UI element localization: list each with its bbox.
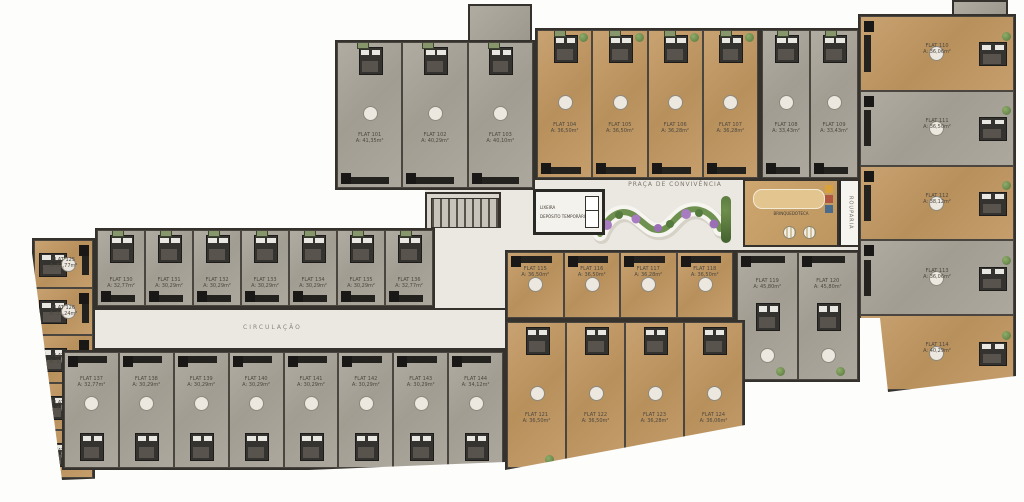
ac-planter-box bbox=[160, 230, 172, 237]
blanket bbox=[778, 49, 794, 60]
unit-label: FLAT 115A: 36,50m² bbox=[508, 266, 563, 278]
unit-label: FLAT 140A: 30,29m² bbox=[230, 376, 283, 388]
bathroom bbox=[68, 356, 78, 367]
unit-label: FLAT 122A: 36,50m² bbox=[567, 412, 624, 424]
bed bbox=[644, 327, 668, 355]
bathroom bbox=[568, 256, 578, 267]
pillow bbox=[982, 45, 992, 50]
ac-planter-box bbox=[777, 30, 789, 37]
unit-label: FLAT 104A: 36,50m² bbox=[538, 122, 591, 134]
flat-number: FLAT 124 bbox=[685, 412, 742, 418]
unit-flat: FLAT 138A: 30,29m² bbox=[119, 352, 174, 468]
flat-area: A: 40,10m² bbox=[469, 138, 532, 144]
pillow bbox=[42, 398, 52, 403]
bed bbox=[817, 303, 841, 331]
unit-flat: FLAT 137A: 32,77m² bbox=[64, 352, 119, 468]
unit-label: FLAT 107A: 36,28m² bbox=[704, 122, 757, 134]
unit-flat: FLAT 102A: 40,29m² bbox=[402, 42, 467, 188]
blanket bbox=[468, 447, 484, 458]
pillow bbox=[666, 38, 674, 44]
flat-number: FLAT 107 bbox=[704, 122, 757, 128]
unit-flat: FLAT 120A: 45,80m² bbox=[798, 252, 859, 380]
kitchenette bbox=[203, 295, 231, 302]
pillow bbox=[733, 38, 741, 44]
flat-number: FLAT 144 bbox=[449, 376, 502, 382]
kitchenette bbox=[864, 185, 871, 221]
bathroom bbox=[624, 256, 634, 267]
pillow bbox=[528, 330, 536, 336]
blanket bbox=[529, 341, 545, 352]
unit-flat: FLAT 109A: 33,43m² bbox=[810, 30, 858, 178]
blanket bbox=[723, 49, 739, 60]
round-table bbox=[929, 46, 944, 61]
blanket bbox=[759, 317, 775, 328]
unit-label: FLAT 142A: 30,29m² bbox=[339, 376, 392, 388]
flat-number: FLAT 123 bbox=[626, 412, 683, 418]
round-table bbox=[469, 396, 484, 411]
unit-flat: FLAT 130A: 32,77m² bbox=[97, 230, 145, 306]
flat-area: A: 36,28m² bbox=[626, 418, 683, 424]
flat-number: FLAT 132 bbox=[194, 277, 240, 283]
bathroom bbox=[178, 356, 188, 367]
pillow bbox=[503, 50, 511, 56]
unit-flat: FLAT 122A: 36,50m² bbox=[566, 322, 625, 468]
unit-label: FLAT 102A: 40,29m² bbox=[403, 132, 466, 144]
kitchenette bbox=[519, 256, 552, 263]
pillow bbox=[171, 238, 179, 244]
bathroom bbox=[652, 163, 662, 174]
unit-flat: FLAT 143A: 30,29m² bbox=[393, 352, 448, 468]
plaza-label: PRAÇA DE CONVIVÊNCIA bbox=[595, 181, 755, 188]
unit-flat: FLAT 119A: 45,80m² bbox=[737, 252, 798, 380]
bed bbox=[465, 433, 489, 461]
ac-planter-box bbox=[720, 30, 732, 37]
flats-left-top-row: FLAT 130A: 32,77m²FLAT 131A: 30,29m²FLAT… bbox=[95, 228, 435, 308]
flat-area: A: 30,29m² bbox=[339, 382, 392, 388]
flat-area: A: 30,29m² bbox=[120, 382, 173, 388]
kitchenette bbox=[864, 35, 871, 71]
flats-top-center: FLAT 104A: 36,50m²FLAT 105A: 36,50m²FLAT… bbox=[535, 28, 760, 180]
flat-number: FLAT 131 bbox=[146, 277, 192, 283]
unit-flat: FLAT 108A: 33,43m² bbox=[762, 30, 810, 178]
bed bbox=[979, 192, 1007, 216]
ac-planter-box bbox=[256, 230, 268, 237]
kitchenette bbox=[864, 110, 871, 146]
bed bbox=[135, 433, 159, 461]
bathroom bbox=[406, 173, 416, 184]
flat-area: A: 36,28m² bbox=[704, 128, 757, 134]
ac-planter-box bbox=[208, 230, 220, 237]
pillow bbox=[267, 238, 275, 244]
blanket bbox=[43, 455, 62, 464]
unit-label: FLAT 108A: 33,43m² bbox=[763, 122, 809, 134]
pillow bbox=[995, 120, 1005, 125]
pillow bbox=[567, 38, 575, 44]
bathroom bbox=[233, 356, 243, 367]
unit-flat: FLAT 101A: 41,35m² bbox=[337, 42, 402, 188]
round-table bbox=[668, 95, 683, 110]
bed bbox=[410, 433, 434, 461]
round-table bbox=[249, 396, 264, 411]
blanket bbox=[353, 249, 369, 260]
unit-label: FLAT 137A: 32,77m² bbox=[65, 376, 118, 388]
unit-flat: FLAT 117A: 36,28m² bbox=[620, 252, 677, 318]
kitchenette bbox=[130, 356, 162, 363]
flat-number: FLAT 138 bbox=[120, 376, 173, 382]
round-table bbox=[414, 396, 429, 411]
pillow bbox=[302, 436, 310, 442]
flat-area: A: 33,43m² bbox=[811, 128, 857, 134]
hedge-planter bbox=[721, 196, 731, 243]
blanket bbox=[43, 408, 62, 417]
blanket bbox=[706, 341, 722, 352]
flat-number: FLAT 137 bbox=[65, 376, 118, 382]
flat-number: FLAT 140 bbox=[230, 376, 283, 382]
bathroom bbox=[511, 256, 521, 267]
pillow bbox=[830, 306, 838, 312]
flat-area: A: 30,29m² bbox=[394, 382, 447, 388]
bed bbox=[300, 433, 324, 461]
plant bbox=[722, 455, 731, 464]
pillow bbox=[423, 436, 431, 442]
bed bbox=[664, 35, 688, 63]
flat-number: FLAT 136 bbox=[386, 277, 432, 283]
plant bbox=[1002, 181, 1011, 190]
round-table bbox=[929, 346, 944, 361]
round-table bbox=[648, 386, 663, 401]
flat-number: FLAT 120 bbox=[799, 278, 858, 284]
bathroom bbox=[123, 356, 133, 367]
bathroom bbox=[864, 320, 874, 331]
blanket bbox=[43, 360, 62, 369]
plant bbox=[745, 33, 754, 42]
plant bbox=[663, 455, 672, 464]
unit-flat: FLAT 141A: 30,29m² bbox=[284, 352, 339, 468]
unit-label: FLAT 105A: 36,50m² bbox=[593, 122, 646, 134]
round-table bbox=[929, 271, 944, 286]
staircase bbox=[431, 198, 499, 228]
blanket bbox=[427, 61, 443, 72]
bed bbox=[585, 327, 609, 355]
pillow bbox=[361, 50, 369, 56]
flat-number: FLAT 106 bbox=[649, 122, 702, 128]
unit-flat: FLAT 140A: 30,29m² bbox=[229, 352, 284, 468]
round-table bbox=[530, 386, 545, 401]
pillow bbox=[677, 38, 685, 44]
flat-area: A: 30,29m² bbox=[285, 382, 338, 388]
round-table bbox=[613, 95, 628, 110]
bathroom bbox=[293, 291, 303, 302]
round-table bbox=[363, 106, 378, 121]
bathroom bbox=[681, 256, 691, 267]
pillow bbox=[368, 436, 376, 442]
corridor-label: CIRCULAÇÃO bbox=[243, 324, 302, 331]
pillow bbox=[112, 238, 120, 244]
pillow bbox=[995, 194, 1005, 199]
unit-flat: FLAT 132A: 30,29m² bbox=[193, 230, 241, 306]
kitchenette bbox=[460, 356, 492, 363]
flat-area: A: 30,29m² bbox=[242, 283, 288, 289]
ac-planter-box bbox=[112, 230, 124, 237]
ac-planter-box bbox=[304, 230, 316, 237]
bathroom bbox=[864, 96, 874, 107]
unit-label: FLAT 136A: 32,77m² bbox=[386, 277, 432, 289]
pillow bbox=[825, 38, 833, 44]
bed bbox=[979, 342, 1007, 366]
bed bbox=[254, 235, 278, 263]
unit-label: FLAT 106A: 36,28m² bbox=[649, 122, 702, 134]
ac-planter-box bbox=[554, 30, 566, 37]
round-table bbox=[698, 277, 713, 292]
unit-flat: FLAT 144A: 34,12m² bbox=[448, 352, 503, 468]
bed bbox=[110, 235, 134, 263]
blanket bbox=[305, 249, 321, 260]
kitchenette bbox=[155, 295, 183, 302]
flat-annex bbox=[952, 0, 1008, 16]
blanket bbox=[43, 312, 62, 321]
round-table bbox=[304, 396, 319, 411]
bed bbox=[554, 35, 578, 63]
bed bbox=[398, 235, 422, 263]
unit-label: FLAT 124A: 36,06m² bbox=[685, 412, 742, 424]
unit-flat: FLAT 115A: 36,50m² bbox=[507, 252, 564, 318]
kitchenette bbox=[688, 256, 721, 263]
bed bbox=[206, 235, 230, 263]
round-table bbox=[428, 106, 443, 121]
kitchenette bbox=[295, 356, 327, 363]
flat-area: A: 45,80m² bbox=[738, 284, 797, 290]
pillow bbox=[42, 303, 52, 308]
flats-bottom-center: FLAT 121A: 36,50m²FLAT 122A: 36,50m²FLAT… bbox=[505, 320, 745, 470]
bathroom bbox=[707, 163, 717, 174]
flat-area: A: 30,29m² bbox=[290, 283, 336, 289]
trash-room: LIXEIRA DEPÓSITO TEMPORÁRIO bbox=[533, 189, 605, 235]
pillow bbox=[492, 50, 500, 56]
unit-flat: FLAT 124A: 36,06m² bbox=[684, 322, 743, 468]
pillow bbox=[352, 238, 360, 244]
blanket bbox=[983, 129, 1002, 138]
flat-number: FLAT 104 bbox=[538, 122, 591, 128]
round-table bbox=[929, 121, 944, 136]
pillow bbox=[836, 38, 844, 44]
blanket bbox=[588, 341, 604, 352]
pillow bbox=[995, 45, 1005, 50]
pillow bbox=[247, 436, 255, 442]
unit-flat: FLAT 125A: 32,77m² bbox=[34, 240, 93, 288]
bathroom bbox=[541, 163, 551, 174]
blanket bbox=[983, 279, 1002, 288]
kitchenette bbox=[350, 356, 382, 363]
blanket bbox=[193, 447, 209, 458]
play-rug bbox=[753, 189, 825, 209]
flat-area: A: 32,77m² bbox=[65, 382, 118, 388]
bathroom bbox=[802, 256, 812, 267]
round-table bbox=[359, 396, 374, 411]
pillow bbox=[363, 238, 371, 244]
pillow bbox=[412, 436, 420, 442]
flat-number: FLAT 108 bbox=[763, 122, 809, 128]
bathroom bbox=[741, 256, 751, 267]
pillow bbox=[83, 436, 91, 442]
unit-label: FLAT 144A: 34,12m² bbox=[449, 376, 502, 388]
bed bbox=[355, 433, 379, 461]
blanket bbox=[303, 447, 319, 458]
pouf bbox=[803, 226, 816, 239]
unit-flat: FLAT 114A: 40,29m² bbox=[860, 315, 1014, 390]
unit-flat: FLAT 111A: 36,50m² bbox=[860, 91, 1014, 166]
pillow bbox=[556, 38, 564, 44]
pillow bbox=[42, 350, 52, 355]
pillow bbox=[622, 38, 630, 44]
flat-number: FLAT 121 bbox=[508, 412, 565, 418]
pillow bbox=[313, 436, 321, 442]
unit-flat: FLAT 103A: 40,10m² bbox=[468, 42, 533, 188]
unit-flat: FLAT 133A: 30,29m² bbox=[241, 230, 289, 306]
unit-label: FLAT 139A: 30,29m² bbox=[175, 376, 228, 388]
flats-middle-right: FLAT 119A: 45,80m²FLAT 120A: 45,80m² bbox=[735, 250, 860, 382]
unit-label: FLAT 103A: 40,10m² bbox=[469, 132, 532, 144]
bathroom bbox=[341, 173, 351, 184]
round-table bbox=[558, 95, 573, 110]
unit-flat: FLAT 118A: 36,50m² bbox=[677, 252, 734, 318]
kitchenette bbox=[185, 356, 217, 363]
kitchenette bbox=[416, 177, 454, 184]
unit-flat: FLAT 105A: 36,50m² bbox=[592, 30, 647, 178]
kitchenette bbox=[864, 334, 871, 370]
kitchenette bbox=[575, 256, 608, 263]
pillow bbox=[258, 436, 266, 442]
bathroom bbox=[341, 291, 351, 302]
round-table bbox=[641, 277, 656, 292]
unit-label: FLAT 134A: 30,29m² bbox=[290, 277, 336, 289]
pillow bbox=[819, 306, 827, 312]
storage-cell bbox=[585, 210, 599, 228]
round-table bbox=[493, 106, 508, 121]
pillow bbox=[160, 238, 168, 244]
blanket bbox=[647, 341, 663, 352]
blanket bbox=[248, 447, 264, 458]
kitchenette bbox=[76, 356, 108, 363]
unit-flat: FLAT 126A: 31,24m² bbox=[34, 288, 93, 336]
bathroom bbox=[864, 171, 874, 182]
bed bbox=[302, 235, 326, 263]
blanket bbox=[358, 447, 374, 458]
kitchenette bbox=[772, 167, 800, 174]
kitchenette bbox=[632, 256, 665, 263]
kitchenette bbox=[240, 356, 272, 363]
unit-flat: FLAT 107A: 36,28m² bbox=[703, 30, 758, 178]
bed bbox=[979, 267, 1007, 291]
pillow bbox=[788, 38, 796, 44]
bed bbox=[526, 327, 550, 355]
round-table bbox=[760, 348, 775, 363]
unit-flat: FLAT 121A: 36,50m² bbox=[507, 322, 566, 468]
ac-planter-box bbox=[400, 230, 412, 237]
playroom: BRINQUEDOTECA bbox=[743, 179, 839, 247]
round-table bbox=[827, 95, 842, 110]
flat-number: FLAT 105 bbox=[593, 122, 646, 128]
round-table bbox=[723, 95, 738, 110]
unit-label: FLAT 120A: 45,80m² bbox=[799, 278, 858, 290]
flat-number: FLAT 135 bbox=[338, 277, 384, 283]
unit-flat: FLAT 113A: 36,06m² bbox=[860, 240, 1014, 315]
plant bbox=[635, 33, 644, 42]
unit-label: FLAT 141A: 30,29m² bbox=[285, 376, 338, 388]
pillow bbox=[256, 238, 264, 244]
toy-shelf bbox=[825, 205, 833, 213]
pillow bbox=[716, 330, 724, 336]
bed bbox=[775, 35, 799, 63]
flat-number: FLAT 142 bbox=[339, 376, 392, 382]
flat-number: FLAT 103 bbox=[469, 132, 532, 138]
round-table bbox=[528, 277, 543, 292]
pillow bbox=[193, 436, 201, 442]
kitchenette bbox=[481, 177, 519, 184]
flat-area: A: 36,50m² bbox=[538, 128, 591, 134]
pillow bbox=[149, 436, 157, 442]
flat-number: FLAT 134 bbox=[290, 277, 336, 283]
flat-number: FLAT 119 bbox=[738, 278, 797, 284]
bathroom bbox=[472, 173, 482, 184]
blanket bbox=[113, 249, 129, 260]
plant bbox=[836, 367, 845, 376]
unit-flat: FLAT 139A: 30,29m² bbox=[174, 352, 229, 468]
bathroom bbox=[864, 245, 874, 256]
kitchenette bbox=[659, 167, 691, 174]
blanket bbox=[413, 447, 429, 458]
unit-label: FLAT 117A: 36,28m² bbox=[621, 266, 676, 278]
round-table bbox=[929, 196, 944, 211]
blanket bbox=[983, 54, 1002, 63]
flat-area: A: 30,29m² bbox=[194, 283, 240, 289]
blanket bbox=[362, 61, 378, 72]
bathroom bbox=[452, 356, 462, 367]
round-table bbox=[61, 257, 76, 272]
kitchenette bbox=[351, 177, 389, 184]
flat-number: FLAT 101 bbox=[338, 132, 401, 138]
pillow bbox=[372, 50, 380, 56]
flat-area: A: 36,50m² bbox=[508, 418, 565, 424]
blanket bbox=[557, 49, 573, 60]
pillow bbox=[722, 38, 730, 44]
plant bbox=[579, 33, 588, 42]
pouf bbox=[783, 226, 796, 239]
unit-flat: FLAT 131A: 30,29m² bbox=[145, 230, 193, 306]
flats-right-wing: FLAT 110A: 36,06m²FLAT 111A: 36,50m²FLAT… bbox=[858, 14, 1016, 392]
kitchenette bbox=[405, 356, 437, 363]
ac-planter-box bbox=[357, 42, 369, 49]
left-wing: CIRCULAÇÃO FLAT 125A: 32,77m²FLAT 126A: … bbox=[28, 228, 505, 480]
unit-label: FLAT 135A: 30,29m² bbox=[338, 277, 384, 289]
bed bbox=[158, 235, 182, 263]
flat-area: A: 36,06m² bbox=[685, 418, 742, 424]
bed bbox=[424, 47, 448, 75]
plant bbox=[1002, 32, 1011, 41]
pillow bbox=[437, 50, 445, 56]
unit-label: FLAT 130A: 32,77m² bbox=[98, 277, 144, 289]
plant bbox=[1002, 256, 1011, 265]
pillow bbox=[138, 436, 146, 442]
kitchenette bbox=[714, 167, 746, 174]
kitchenette bbox=[820, 167, 848, 174]
flat-area: A: 30,29m² bbox=[338, 283, 384, 289]
blanket bbox=[826, 49, 842, 60]
pillow bbox=[770, 306, 778, 312]
bathroom bbox=[342, 356, 352, 367]
blanket bbox=[84, 447, 100, 458]
round-table bbox=[589, 386, 604, 401]
pillow bbox=[995, 269, 1005, 274]
